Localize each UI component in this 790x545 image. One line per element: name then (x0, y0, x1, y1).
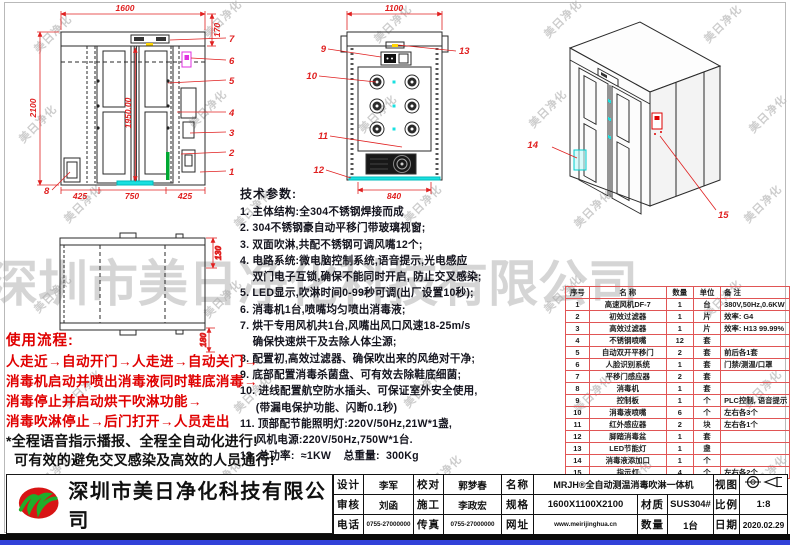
svg-text:5: 5 (229, 76, 235, 87)
table-cell: 效率: H13 99.99% (721, 323, 790, 335)
table-cell: 前后各1套 (721, 347, 790, 359)
table-cell: 人脸识别系统 (589, 359, 666, 371)
table-cell (721, 443, 790, 455)
design-label: 设计 (334, 475, 364, 495)
table-cell: 左右各3个 (721, 407, 790, 419)
view-label: 视图 (714, 475, 740, 495)
table-cell (721, 455, 790, 467)
table-cell: 套 (693, 359, 720, 371)
check-label: 校对 (414, 475, 444, 495)
table-cell: 9 (566, 395, 590, 407)
table-cell: 不锈钢喷嘴 (589, 335, 666, 347)
table-cell (721, 371, 790, 383)
table-cell: 块 (693, 419, 720, 431)
table-cell: 1 (566, 299, 590, 311)
product-name: MRJH®全自动测温消毒吹淋一体机 (534, 475, 714, 495)
table-cell: 个 (693, 407, 720, 419)
table-cell: 4 (566, 335, 590, 347)
table-row: 7平移门感应器2套 (566, 371, 790, 383)
table-cell: 套 (693, 431, 720, 443)
table-cell: 套 (693, 335, 720, 347)
spec-line: 5. LED显示,吹淋时间0-99秒可调(出厂设置10秒); (240, 285, 482, 301)
spec-line: 4. 电路系统:微电脑控制系统,语音提示,光电感应 (240, 253, 482, 269)
drawing-sheet: 美日净化美日净化美日净化美日净化美日净化美日净化美日净化美日净化美日净化美日净化… (0, 0, 790, 545)
bottom-blue-bar (0, 540, 790, 545)
table-cell: 10 (566, 407, 590, 419)
spec-line: 8. 配置初,高效过滤器、确保吹出来的风绝对干净; (240, 351, 482, 367)
tel-value: 0755-27000000 (364, 515, 414, 535)
svg-text:12: 12 (313, 165, 324, 176)
parts-table: 序号名 称数量单位备 注 1高速风机DF-71台380V,50Hz,0.6KW2… (565, 286, 790, 479)
table-cell: 平移门感应器 (589, 371, 666, 383)
table-cell: 1 (666, 455, 693, 467)
table-cell: 1 (666, 431, 693, 443)
plan-view-drawing (60, 233, 205, 335)
usage-note: *全程语音指示播报、全程全自动化进行! (6, 432, 275, 451)
table-cell: 5 (566, 347, 590, 359)
table-cell: 个 (693, 395, 720, 407)
table-cell: 1 (666, 359, 693, 371)
material-label: 材质 (638, 495, 668, 515)
technical-specs: 技术参数: 1. 主体结构:全304不锈钢焊接而成2. 304不锈钢豪自动平移门… (240, 185, 482, 465)
table-row: 3高效过滤器1片效率: H13 99.99% (566, 323, 790, 335)
table-cell: 1 (666, 299, 693, 311)
svg-text:7: 7 (229, 34, 235, 45)
table-cell: 2 (666, 347, 693, 359)
table-cell: 高速风机DF-7 (589, 299, 666, 311)
table-cell: 套 (693, 383, 720, 395)
projection-symbol (740, 475, 788, 495)
table-cell: 红外感应器 (589, 419, 666, 431)
table-cell: 套 (693, 371, 720, 383)
qty-value: 1台 (668, 515, 714, 535)
svg-text:425: 425 (177, 191, 192, 201)
spec-line: 2. 304不锈钢豪自动平移门带玻璃视窗; (240, 220, 482, 236)
table-cell: 套 (693, 347, 720, 359)
web-label: 网址 (502, 515, 534, 535)
spec-line: 12. 总功率: ≈1KW 总重量: 300Kg (240, 448, 482, 464)
svg-text:4: 4 (228, 108, 235, 119)
table-cell: 14 (566, 455, 590, 467)
table-cell: 2 (666, 371, 693, 383)
parts-table-header: 序号名 称数量单位备 注 (566, 287, 790, 299)
table-row: 12脚踏消毒盆1套 (566, 431, 790, 443)
table-cell: 左右各1个 (721, 419, 790, 431)
specs-lines: 1. 主体结构:全304不锈钢焊接而成2. 304不锈钢豪自动平移门带玻璃视窗;… (240, 204, 482, 465)
table-row: 6人脸识别系统1套门禁/测温/口罩 (566, 359, 790, 371)
table-cell: 7 (566, 371, 590, 383)
tel-label: 电话 (334, 515, 364, 535)
usage-step: 消毒机启动并喷出消毒液同时鞋底消毒→ (6, 372, 275, 392)
table-row: 14消毒液添加口1个 (566, 455, 790, 467)
spec-line: 双门电子互锁,确保不能同时开启, 防止交叉感染; (240, 269, 482, 285)
scale-value: 1:8 (740, 495, 788, 515)
table-cell: 1 (666, 443, 693, 455)
table-cell: 台 (693, 299, 720, 311)
build-value: 李政宏 (444, 495, 502, 515)
table-cell: 6 (566, 359, 590, 371)
usage-flow-title: 使用流程: (6, 331, 275, 352)
svg-text:1950.00: 1950.00 (123, 97, 133, 128)
table-row: 5自动双开平移门2套前后各1套 (566, 347, 790, 359)
table-cell: 消毒液添加口 (589, 455, 666, 467)
svg-text:750: 750 (125, 191, 139, 201)
svg-text:14: 14 (527, 140, 538, 151)
parts-table-header-cell: 序号 (566, 287, 590, 299)
spec-line: 3. 双面吹淋,共配不锈钢可调风嘴12个; (240, 237, 482, 253)
date-value: 2020.02.29 (740, 515, 788, 535)
spec-line: 风机电源:220V/50Hz,750W*1台. (240, 432, 482, 448)
table-cell: 12 (666, 335, 693, 347)
scale-label: 比例 (714, 495, 740, 515)
table-cell (721, 383, 790, 395)
usage-note: 可有效的避免交叉感染及高效的人员通行! (6, 451, 275, 470)
table-row: 4不锈钢喷嘴12套 (566, 335, 790, 347)
table-cell: 消毒液喷嘴 (589, 407, 666, 419)
date-label: 日期 (714, 515, 740, 535)
name-label: 名称 (502, 475, 534, 495)
table-cell: 初效过滤器 (589, 311, 666, 323)
table-cell: 片 (693, 323, 720, 335)
build-label: 施工 (414, 495, 444, 515)
table-cell: 盏 (693, 443, 720, 455)
table-cell: 380V,50Hz,0.6KW (721, 299, 790, 311)
spec-line: (带漏电保护功能、闪断0.1秒) (240, 400, 482, 416)
table-cell: 11 (566, 419, 590, 431)
table-cell: 脚踏消毒盆 (589, 431, 666, 443)
svg-text:3: 3 (229, 128, 235, 139)
table-cell (721, 431, 790, 443)
usage-flow-steps: 人走近→自动开门→人走进→自动关门→消毒机启动并喷出消毒液同时鞋底消毒→消毒停止… (6, 352, 275, 432)
audit-label: 审核 (334, 495, 364, 515)
svg-text:425: 425 (72, 191, 87, 201)
table-cell: LED节能灯 (589, 443, 666, 455)
table-cell: 8 (566, 383, 590, 395)
parts-table-header-cell: 数量 (666, 287, 693, 299)
check-value: 郭梦春 (444, 475, 502, 495)
spec-line: 1. 主体结构:全304不锈钢焊接而成 (240, 204, 482, 220)
table-cell: 控制板 (589, 395, 666, 407)
table-row: 13LED节能灯1盏 (566, 443, 790, 455)
svg-text:1: 1 (229, 167, 234, 178)
table-row: 2初效过滤器1片效率: G4 (566, 311, 790, 323)
usage-step: 消毒吹淋停止→后门打开→人员走出 (6, 412, 275, 432)
svg-text:170: 170 (212, 23, 222, 37)
table-cell: 1 (666, 311, 693, 323)
company-logo (17, 484, 60, 524)
table-cell (721, 335, 790, 347)
usage-step: 消毒停止并启动烘干吹淋功能→ (6, 392, 275, 412)
spec-line: 9. 底部配置消毒杀菌盘、可有效去除鞋底细菌; (240, 367, 482, 383)
svg-text:2: 2 (228, 148, 235, 159)
table-cell: 自动双开平移门 (589, 347, 666, 359)
inner-view-drawing (341, 32, 448, 180)
table-cell: 消毒机 (589, 383, 666, 395)
isometric-view-drawing (570, 22, 720, 219)
qty-label: 数量 (638, 515, 668, 535)
company-block: 深圳市美日净化科技有限公司 (6, 474, 333, 534)
parts-table-header-cell: 备 注 (721, 287, 790, 299)
table-cell: 1 (666, 395, 693, 407)
svg-text:6: 6 (229, 56, 235, 67)
svg-text:2100: 2100 (28, 98, 38, 118)
specs-title: 技术参数: (240, 185, 482, 202)
table-row: 10消毒液喷嘴6个左右各3个 (566, 407, 790, 419)
spec-line: 7. 烘干专用风机共1台,风嘴出风口风速18-25m/s (240, 318, 482, 334)
svg-text:9: 9 (321, 44, 327, 55)
title-block: 设计 李军 校对 郭梦春 名称 MRJH®全自动测温消毒吹淋一体机 视图 审核 … (333, 474, 788, 535)
usage-flow: 使用流程: 人走近→自动开门→人走进→自动关门→消毒机启动并喷出消毒液同时鞋底消… (6, 331, 275, 470)
table-cell: 1 (666, 323, 693, 335)
spec-line: 确保快速烘干及去除人体尘源; (240, 334, 482, 350)
spec-line: 6. 消毒机1台,喷嘴均匀喷出消毒液; (240, 302, 482, 318)
svg-text:130: 130 (213, 246, 223, 260)
svg-text:10: 10 (306, 71, 317, 82)
svg-text:8: 8 (44, 186, 50, 197)
table-cell: 个 (693, 455, 720, 467)
table-row: 9控制板1个PLC控制, 语音提示 (566, 395, 790, 407)
fax-value: 0755-27000000 (444, 515, 502, 535)
table-cell: 片 (693, 311, 720, 323)
company-name: 深圳市美日净化科技有限公司 (68, 475, 332, 533)
audit-value: 刘函 (364, 495, 414, 515)
table-cell: 13 (566, 443, 590, 455)
title-block-row: 设计 李军 校对 郭梦春 名称 MRJH®全自动测温消毒吹淋一体机 视图 (334, 475, 788, 495)
design-value: 李军 (364, 475, 414, 495)
web-value: www.meirijinghua.cn (534, 515, 638, 535)
svg-text:1100: 1100 (385, 3, 404, 13)
parts-table-header-cell: 单位 (693, 287, 720, 299)
title-block-row: 审核 刘函 施工 李政宏 规格 1600X1100X2100 材质 SUS304… (334, 495, 788, 515)
usage-step: 人走近→自动开门→人走进→自动关门→ (6, 352, 275, 372)
spec-line: 11. 顶部配节能照明灯:220V/50Hz,21W*1盏, (240, 416, 482, 432)
table-row: 11红外感应器2块左右各1个 (566, 419, 790, 431)
svg-text:11: 11 (318, 131, 328, 142)
table-cell: 2 (566, 311, 590, 323)
table-cell: 高效过滤器 (589, 323, 666, 335)
table-cell: 2 (666, 419, 693, 431)
spec-label: 规格 (502, 495, 534, 515)
svg-text:13: 13 (459, 46, 470, 57)
table-cell: 3 (566, 323, 590, 335)
front-view-drawing (61, 32, 205, 185)
spec-line: 10. 进线配置航空防水插头、可保证室外安全使用, (240, 383, 482, 399)
table-row: 1高速风机DF-71台380V,50Hz,0.6KW (566, 299, 790, 311)
table-cell: 效率: G4 (721, 311, 790, 323)
table-cell: 6 (666, 407, 693, 419)
spec-value: 1600X1100X2100 (534, 495, 638, 515)
table-cell: 1 (666, 383, 693, 395)
table-cell: 门禁/测温/口罩 (721, 359, 790, 371)
table-row: 8消毒机1套 (566, 383, 790, 395)
svg-text:1600: 1600 (116, 3, 135, 13)
usage-flow-notes: *全程语音指示播报、全程全自动化进行! 可有效的避免交叉感染及高效的人员通行! (6, 432, 275, 470)
parts-table-body: 1高速风机DF-71台380V,50Hz,0.6KW2初效过滤器1片效率: G4… (566, 299, 790, 479)
svg-text:15: 15 (718, 210, 729, 221)
fax-label: 传真 (414, 515, 444, 535)
table-cell: 12 (566, 431, 590, 443)
material-value: SUS304# (668, 495, 714, 515)
title-block-row: 电话 0755-27000000 传真 0755-27000000 网址 www… (334, 515, 788, 535)
table-cell: PLC控制, 语音提示 (721, 395, 790, 407)
parts-table-header-cell: 名 称 (589, 287, 666, 299)
